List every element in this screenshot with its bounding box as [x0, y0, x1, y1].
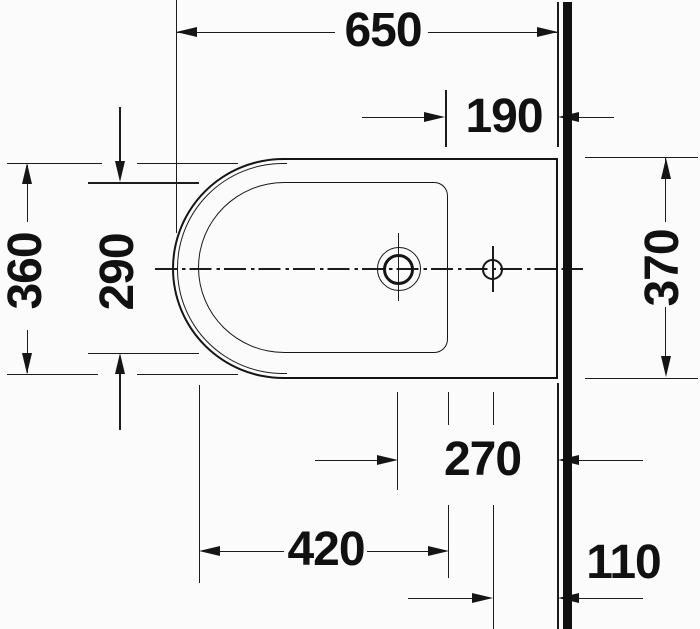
horizontal-centerline	[155, 268, 583, 269]
dim-370-label: 370	[639, 229, 687, 306]
extension-line-290-bottom	[88, 353, 199, 354]
arrowhead-370-top	[661, 158, 671, 179]
tap-hole-inner-circle	[383, 254, 414, 285]
extension-line-360-top-b	[137, 163, 238, 164]
dim-110-tail-right	[579, 598, 644, 599]
dim-190-tail-right	[579, 117, 614, 118]
extension-line-270-left	[397, 392, 398, 490]
bidet-plan-technical-drawing: 650 190 360 290 370 270 420 110	[0, 0, 700, 629]
extension-line-290-top	[88, 182, 199, 183]
dim-370-line-bottom	[665, 307, 666, 356]
arrowhead-420-left	[199, 546, 220, 556]
dim-110-label: 110	[586, 539, 660, 587]
arrowhead-420-right	[428, 546, 449, 556]
arrowhead-190-left	[424, 112, 445, 122]
dim-650-line-left	[176, 32, 335, 33]
extension-line-370-bottom	[585, 378, 698, 379]
dim-420-label: 420	[287, 526, 364, 574]
dim-270-tail-left	[315, 460, 377, 461]
side-hole-circle	[482, 259, 503, 280]
extension-line-110-left-upper	[493, 392, 494, 425]
extension-line-360-bottom-b	[137, 374, 238, 375]
dim-110-tail-left	[408, 598, 472, 599]
dim-190-tail-left	[362, 117, 424, 118]
extension-line-420-right-upper	[448, 392, 449, 425]
dim-290-label: 290	[94, 233, 142, 310]
arrowhead-290-bottom	[115, 353, 125, 374]
arrowhead-360-top	[22, 163, 32, 184]
dim-650-label: 650	[344, 7, 421, 55]
dim-290-tail-bottom	[119, 374, 120, 430]
extension-line-110-left-lower	[493, 505, 494, 629]
wall-section-line	[563, 2, 572, 629]
arrowhead-270-left	[377, 455, 398, 465]
arrowhead-360-bottom	[22, 353, 32, 374]
arrowhead-290-top	[115, 161, 125, 182]
extension-line-190-left	[445, 90, 446, 147]
dim-190-label: 190	[465, 93, 542, 141]
extension-line-360-bottom-a	[7, 374, 98, 375]
extension-line-420-right-lower	[448, 505, 449, 578]
arrowhead-650-left	[176, 27, 197, 37]
arrowhead-650-right	[537, 27, 558, 37]
arrowhead-110-left	[472, 593, 493, 603]
extension-line-370-top	[585, 157, 698, 158]
dim-360-label: 360	[2, 232, 50, 309]
arrowhead-370-bottom	[661, 356, 671, 377]
extension-line-wall-face-top	[557, 2, 558, 147]
dim-290-tail-top	[119, 107, 120, 163]
dim-420-line-left	[220, 551, 284, 552]
dim-270-label: 270	[444, 436, 521, 484]
dim-270-tail-right	[579, 460, 644, 461]
dim-420-line-right	[367, 551, 428, 552]
